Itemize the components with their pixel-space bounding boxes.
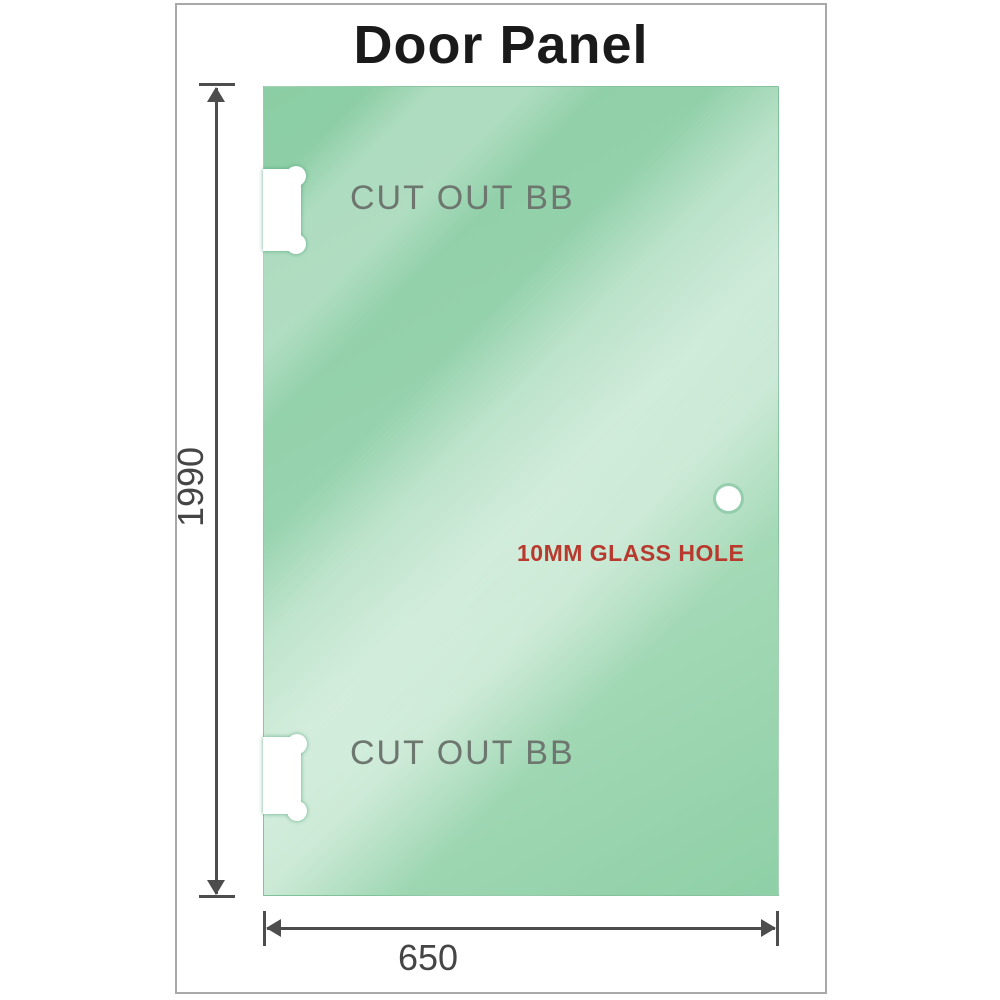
width-dimension-line — [267, 927, 775, 930]
hinge-cutout-bottom — [263, 737, 311, 814]
cutout-lobe-shape — [286, 234, 306, 254]
height-dimension-cap-bottom — [199, 895, 235, 898]
door-panel-diagram: Door Panel CUT OUT BB CUT OUT BB 10MM GL… — [0, 0, 1000, 1000]
cutout-label-bottom: CUT OUT BB — [350, 734, 575, 773]
glass-hole — [716, 486, 741, 511]
glass-hole-label: 10MM GLASS HOLE — [517, 540, 744, 567]
height-dimension-cap-top — [199, 83, 235, 86]
width-dimension-tick-right — [776, 911, 779, 946]
arrow-right-icon — [761, 919, 776, 937]
height-dimension-line — [215, 88, 218, 894]
height-dimension-label: 1990 — [173, 437, 209, 537]
cutout-label-top: CUT OUT BB — [350, 179, 575, 218]
cutout-lobe-shape — [286, 166, 306, 186]
glass-panel: CUT OUT BB CUT OUT BB 10MM GLASS HOLE — [263, 86, 779, 896]
cutout-lobe-shape — [287, 801, 307, 821]
arrow-left-icon — [266, 919, 281, 937]
arrow-down-icon — [207, 880, 225, 895]
width-dimension-label: 650 — [378, 937, 478, 979]
arrow-up-icon — [207, 87, 225, 102]
hinge-cutout-top — [263, 169, 311, 251]
cutout-lobe-shape — [287, 734, 307, 754]
page-title: Door Panel — [175, 14, 827, 76]
